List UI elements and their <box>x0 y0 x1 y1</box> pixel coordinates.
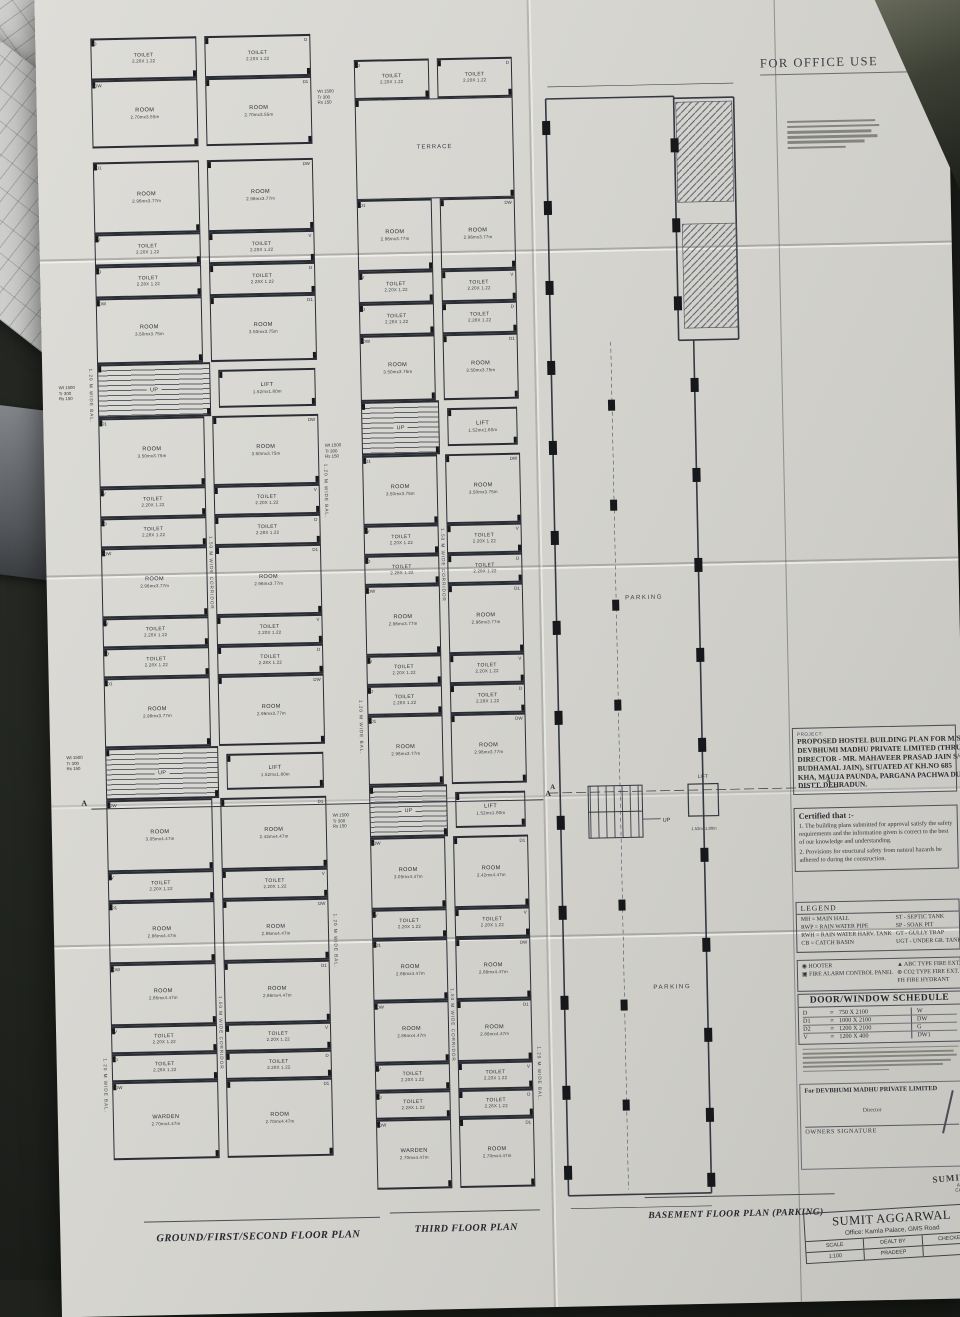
plan-band: DW ROOM 2.70mx3.55m D1 ROOM 2.70mx3.55m <box>82 76 321 149</box>
basement-stair: UP <box>588 785 671 839</box>
legend-left-items: MH = MAIN HALLRWP = RAIN WATER PIPERWH =… <box>801 915 892 949</box>
door-tag: D1 <box>519 838 525 843</box>
door-tag: D <box>98 269 101 274</box>
room-cell: DW ROOM 2.86mx4.47m <box>455 937 531 1001</box>
room-dimension: 2.20X 1.22 <box>263 884 286 890</box>
room-cell: UP <box>361 400 441 456</box>
door-tag: D1 <box>523 1002 529 1007</box>
room-dimension: 2.28X 1.22 <box>256 530 279 536</box>
certificate-block: Certified that :- 1. The building plans … <box>794 805 959 872</box>
plan-band: D TOILET 2.28X 1.22 D TOILET 2.28X 1.22 <box>358 682 535 716</box>
room-cell: DW ROOM 3.50mx3.75m <box>212 414 319 486</box>
room-dimension: 2.70mx4.47m <box>266 1118 295 1124</box>
room-dimension: 2.96mx3.77m <box>254 580 283 586</box>
room-cell: D TOILET 2.28X 1.22 <box>214 514 321 546</box>
plan-band: D1 ROOM 3.50mx3.75m DW ROOM 3.50mx3.75m <box>353 452 530 526</box>
room-cell: D TOILET 2.28X 1.22 <box>100 516 207 548</box>
room-cell: D TOILET 2.28X 1.22 <box>226 1050 333 1080</box>
door-tag: D <box>314 517 317 522</box>
certificate-items: 1. The building plans submitted for appr… <box>799 820 954 865</box>
door-tag: D <box>309 265 312 270</box>
room-cell: V TOILET 2.20X 1.22 <box>358 270 434 304</box>
room-cell: D1 ROOM 2.70mx4.47m <box>459 1116 535 1188</box>
door-tag: D <box>106 651 109 656</box>
room-dimension: 2.96mx3.77m <box>140 583 169 589</box>
room-cell: DW ROOM 2.86mx4.47m <box>373 1000 449 1064</box>
room-dimension: 3.50mx3.75m <box>383 369 412 375</box>
room-cell: V TOILET 2.20X 1.22 <box>225 1022 332 1052</box>
parking-label: PARKING <box>625 594 663 602</box>
fire-legend-item: ▣ FIRE ALARM CONTROL PANEL <box>802 970 893 980</box>
equals-sign: = <box>825 1025 839 1032</box>
stair-note: Wt 1500 Tr 300 Rs 150 <box>333 812 350 829</box>
door-tag: D <box>511 304 514 309</box>
door-code: D1 <box>803 1017 825 1024</box>
room-cell: DW ROOM 2.70mx3.55m <box>91 78 198 148</box>
room-dimension: 2.70mx4.47m <box>483 1153 512 1159</box>
room-dimension: 2.28X 1.22 <box>473 568 496 574</box>
door-tag: V <box>524 910 527 915</box>
room-cell: DW WARDEN 2.70mx4.47m <box>376 1118 452 1190</box>
door-tag: D1 <box>525 1120 531 1125</box>
legend-title: LEGEND <box>797 900 959 915</box>
door-tag: DW <box>515 716 522 721</box>
room-dimension: 2.20X 1.22 <box>250 247 273 253</box>
door-tag: D <box>362 307 365 312</box>
plan-band: D1 ROOM 2.86mx4.47m DW ROOM 2.86mx4.47m <box>99 898 338 965</box>
fire-legend-right: ▲ ABC TYPE FIRE EXT.⊛ CO2 TYPE FIRE EXT.… <box>897 961 960 986</box>
door-size: 1200 X 400 <box>839 1032 912 1041</box>
door-tag: D <box>357 63 360 68</box>
room-cell: V TOILET 2.20X 1.22 <box>108 870 215 902</box>
room-cell: UP <box>369 784 449 838</box>
room-cell: UP <box>105 746 219 800</box>
room-cell: D TOILET 2.28X 1.22 <box>450 683 526 715</box>
plan-band: DW ROOM 3.50mx3.75m D1 ROOM 3.50mx3.75m <box>351 332 528 402</box>
room-dimension: 2.20X 1.22 <box>141 502 164 508</box>
room-cell: TERRACE <box>355 97 515 200</box>
room-cell: D TOILET 2.20X 1.22 <box>354 58 430 100</box>
room-cell: LIFT 1.52mx1.80m <box>226 752 324 790</box>
stair-note: Wt 1500 Tr 300 Rs 150 <box>317 88 334 105</box>
room-dimension: 2.96mx3.77m <box>472 619 501 625</box>
room-cell: V TOILET 2.20X 1.22 <box>441 269 517 303</box>
room-label: UP <box>394 425 408 432</box>
door-tag: V <box>518 656 521 661</box>
room-cell: V TOILET 2.20X 1.22 <box>222 868 329 900</box>
room-label: TERRACE <box>417 144 453 152</box>
room-dimension: 2.28X 1.22 <box>142 532 165 538</box>
room-cell: D1 ROOM 2.42mx4.47m <box>220 796 327 870</box>
balcony-label: 1.20 M WIDE BAL. <box>536 1046 542 1101</box>
room-cell: V TOILET 2.20X 1.22 <box>458 1060 534 1090</box>
room-cell: D1 ROOM 2.96mx3.77m <box>367 714 443 786</box>
door-tag: D <box>304 37 307 42</box>
room-cell: D1 ROOM 3.50mx3.75m <box>443 333 519 401</box>
balcony-label: 1.20 M WIDE BAL. <box>333 914 339 969</box>
room-cell: V TOILET 2.20X 1.22 <box>366 654 442 686</box>
door-tag: D <box>103 521 106 526</box>
room-dimension: 2.96mx3.77m <box>143 713 172 719</box>
room-dimension: 3.50mx3.75m <box>249 328 278 334</box>
room-cell: D1 ROOM 3.50mx3.75m <box>98 416 205 488</box>
room-dimension: 2.20X 1.22 <box>463 78 486 84</box>
door-tag: D <box>516 556 519 561</box>
door-tag: DW <box>373 841 380 846</box>
legend-item: CB = CATCH BASIN <box>801 939 892 949</box>
room-dimension: 2.28X 1.22 <box>259 660 282 666</box>
room-dimension: 2.86mx4.47m <box>396 970 425 976</box>
plan-title-third: THIRD FLOOR PLAN <box>376 1221 556 1236</box>
room-cell: D1 ROOM 2.96mx3.77m <box>104 676 211 748</box>
room-cell: DW ROOM 3.05mx4.47m <box>106 798 213 872</box>
fine-print-lines <box>803 1043 960 1075</box>
room-dimension: 2.20X 1.22 <box>255 500 278 506</box>
room-dimension: 2.96mx3.77m <box>391 750 420 756</box>
door-tag: V <box>105 621 108 626</box>
plan-band: D TOILET 2.28X 1.22 D TOILET 2.28X 1.22 <box>86 262 325 299</box>
room-cell: DW ROOM 3.50mx3.75m <box>360 334 436 402</box>
room-dimension: 2.20X 1.22 <box>467 286 490 292</box>
certificate-title: Certified that :- <box>799 809 953 821</box>
door-tag: DW <box>504 200 511 205</box>
signature-block: For DEVBHUMI MADHU PRIVATE LIMITED Direc… <box>799 1080 960 1169</box>
room-dimension: 2.28X 1.22 <box>145 662 168 668</box>
door-tag: DW <box>510 456 517 461</box>
room-dimension: 2.20X 1.22 <box>390 540 413 546</box>
window-code: DW <box>912 1015 957 1023</box>
door-window-schedule: DOOR/WINDOW SCHEDULE D = 750 X 2100 W D1… <box>797 990 960 1044</box>
room-dimension: 2.70mx4.47m <box>400 1154 429 1160</box>
room-dimension: 2.86mx4.47m <box>262 930 291 936</box>
floor-plan-third: D TOILET 2.20X 1.22 D TOILET 2.20X 1.22 … <box>345 57 545 1190</box>
office-note-lines <box>787 116 884 152</box>
room-dimension: 2.28X 1.22 <box>267 1065 290 1071</box>
room-label: UP <box>147 387 161 394</box>
equals-sign: = <box>825 1033 839 1040</box>
room-dimension: 2.20X 1.22 <box>144 632 167 638</box>
room-dimension: 2.20X 1.22 <box>475 668 498 674</box>
plan-band: D1 ROOM 2.96mx3.77m DW ROOM 2.96mx3.77m <box>95 674 334 749</box>
floor-plan-ground: D TOILET 2.20X 1.22 D TOILET 2.20X 1.22 … <box>81 34 342 1161</box>
room-cell: V TOILET 2.20X 1.22 <box>111 1024 218 1054</box>
dealt-by-value: PRADEEP <box>865 1246 924 1259</box>
room-dimension: 3.50mx3.75m <box>138 453 167 459</box>
room-dimension: 2.70mx3.55m <box>244 111 273 117</box>
room-dimension: 2.28X 1.22 <box>468 318 491 324</box>
door-tag: DW <box>303 161 310 166</box>
title-column: FOR OFFICE USE PROJECT: PROPOSED HOSTEL … <box>776 0 960 1302</box>
room-dimension: 2.28X 1.22 <box>476 698 499 704</box>
room-cell: D TOILET 2.28X 1.22 <box>458 1088 534 1118</box>
door-tag: D1 <box>101 421 107 426</box>
room-dimension: 2.20X 1.22 <box>246 56 269 62</box>
up-label: UP <box>663 818 671 824</box>
room-dimension: 3.50mx3.75m <box>252 450 281 456</box>
project-lines: PROPOSED HOSTEL BUILDING PLAN FOR M/SDEV… <box>797 735 952 792</box>
room-dimension: 2.28X 1.22 <box>137 281 160 287</box>
certificate-item: 2. Provisions for structural safety from… <box>799 846 953 865</box>
door-tag: V <box>378 1067 381 1072</box>
door-tag: V <box>316 617 319 622</box>
plan-title-ground: GROUND/FIRST/SECOND FLOOR PLAN <box>118 1228 398 1245</box>
lift-dimension: 1.52mx1.80m <box>691 826 717 832</box>
room-dimension: 1.52mx1.80m <box>261 771 290 777</box>
room-cell: D TOILET 2.28X 1.22 <box>447 553 523 585</box>
room-dimension: 2.28X 1.22 <box>390 570 413 576</box>
room-dimension: 2.70mx3.55m <box>130 114 159 120</box>
door-tag: D1 <box>375 943 381 948</box>
room-cell: D TOILET 2.28X 1.22 <box>103 646 210 678</box>
architect-title-block: SUMIT AGGARWAL Office: Kamla Palace, GMS… <box>803 1203 960 1264</box>
door-tag: DW <box>318 901 325 906</box>
door-tag: D1 <box>107 681 113 686</box>
stair-note: Wt 1500 Tr 300 Rs 150 <box>66 755 83 772</box>
door-tag: DW <box>313 677 320 682</box>
door-tag: D1 <box>365 459 371 464</box>
room-cell: D1 ROOM 2.70mx3.55m <box>205 76 312 146</box>
plan-band: DW ROOM 3.50mx3.75m D1 ROOM 3.50mx3.75m <box>87 294 326 365</box>
room-cell: LIFT 1.52mx1.80m <box>456 791 526 828</box>
door-tag: DW <box>520 940 527 945</box>
room-cell: V TOILET 2.20X 1.22 <box>449 653 525 685</box>
room-dimension: 2.96mx3.77m <box>132 198 161 204</box>
room-cell: D1 ROOM 2.86mx4.47m <box>224 960 331 1024</box>
project-block: PROJECT: PROPOSED HOSTEL BUILDING PLAN F… <box>792 725 957 796</box>
door-tag: D <box>367 559 370 564</box>
col-checked: CHECKED <box>922 1232 960 1245</box>
fire-legend-block: ◉ HOOTER▣ FIRE ALARM CONTROL PANEL ▲ ABC… <box>797 957 960 992</box>
room-cell: V TOILET 2.20X 1.22 <box>216 614 323 646</box>
plan-band: V TOILET 2.20X 1.22 V TOILET 2.20X 1.22 <box>357 652 534 686</box>
room-dimension: 2.20X 1.22 <box>484 1075 507 1081</box>
room-dimension: 2.20X 1.22 <box>398 924 421 930</box>
room-dimension: 2.42mx4.47m <box>477 872 506 878</box>
room-dimension: 1.52mx1.80m <box>476 810 505 816</box>
plan-bands: D TOILET 2.20X 1.22 D TOILET 2.20X 1.22 … <box>345 57 545 1190</box>
door-tag: D <box>93 41 96 46</box>
door-tag: DW <box>377 1005 384 1010</box>
room-cell: D TOILET 2.28X 1.22 <box>442 301 518 335</box>
room-dimension: 2.20X 1.22 <box>267 1037 290 1043</box>
room-cell: D TOILET 2.20X 1.22 <box>90 36 197 80</box>
scale-value: 1:100 <box>806 1250 865 1263</box>
room-dimension: 2.20X 1.22 <box>132 59 155 65</box>
room-dimension: 2.28X 1.22 <box>153 1067 176 1073</box>
door-tag: D1 <box>111 905 117 910</box>
door-code: V <box>803 1033 825 1040</box>
dimension-line <box>390 1209 540 1213</box>
room-cell: D TOILET 2.28X 1.22 <box>367 684 443 716</box>
blueprint-sheet: D TOILET 2.20X 1.22 D TOILET 2.20X 1.22 … <box>34 0 960 1317</box>
door-tag: DW <box>99 301 106 306</box>
room-cell: D TOILET 2.28X 1.22 <box>217 644 324 676</box>
room-dimension: 3.50mx3.75m <box>469 489 498 495</box>
room-cell: D1 ROOM 2.96mx3.77m <box>215 544 322 616</box>
door-tag: D <box>317 647 320 652</box>
room-cell: DW ROOM 2.96mx3.77m <box>218 674 325 746</box>
stair-note: Wt 1500 Tr 300 Rs 150 <box>59 385 76 402</box>
door-tag: D1 <box>307 297 313 302</box>
door-tag: D1 <box>514 586 520 591</box>
room-cell: V TOILET 2.20X 1.22 <box>100 486 207 518</box>
room-cell: D TOILET 2.28X 1.22 <box>112 1052 219 1082</box>
plan-band: D1 ROOM 2.96mx3.77m DW ROOM 2.96mx3.77m <box>348 196 525 272</box>
window-code: W <box>912 1007 957 1015</box>
plan-band: TERRACE <box>346 97 524 201</box>
schedule-rows: D = 750 X 2100 W D1 = 1000 X 2100 DW D2 <box>803 1007 958 1041</box>
room-dimension: 2.96mx3.77m <box>381 236 410 242</box>
room-cell: D1 ROOM 2.86mx4.47m <box>456 999 532 1063</box>
door-tag: V <box>97 237 100 242</box>
room-cell: V TOILET 2.20X 1.22 <box>208 230 315 264</box>
room-cell: V TOILET 2.20X 1.22 <box>214 484 321 516</box>
plan-band: D1 ROOM 3.50mx3.75m DW ROOM 3.50mx3.75m <box>89 414 328 489</box>
room-dimension: 2.86mx4.47m <box>397 1032 426 1038</box>
plan-band: UP LIFT 1.52mx1.80m <box>96 744 335 801</box>
plan-band: UP LIFT 1.52mx1.80m <box>360 782 537 838</box>
room-dimension: 3.05mx4.47m <box>146 836 175 842</box>
lift-label: LIFT <box>698 774 708 780</box>
room-cell: V TOILET 2.20X 1.22 <box>375 1062 451 1092</box>
room-cell: DW ROOM 2.96mx3.77m <box>440 197 516 271</box>
door-tag: D <box>325 1053 328 1058</box>
room-cell: D TOILET 2.28X 1.22 <box>95 264 202 298</box>
room-dimension: 2.20X 1.22 <box>380 79 403 85</box>
door-tag: D <box>370 689 373 694</box>
room-dimension: 2.70mx4.47m <box>152 1121 181 1127</box>
dimension-line <box>144 1217 380 1223</box>
fire-legend-left: ◉ HOOTER▣ FIRE ALARM CONTROL PANEL <box>802 962 894 988</box>
room-cell: D1 ROOM 2.70mx4.47m <box>226 1078 334 1158</box>
plan-band: D1 ROOM 2.96mx3.77m DW ROOM 2.96mx3.77m <box>84 158 323 235</box>
room-cell: D TOILET 2.28X 1.22 <box>209 262 316 296</box>
certificate-item: 1. The building plans submitted for appr… <box>799 820 953 846</box>
door-tag: V <box>375 913 378 918</box>
plan-band: D TOILET 2.20X 1.22 D TOILET 2.20X 1.22 <box>81 34 320 81</box>
plan-band: D TOILET 2.20X 1.22 D TOILET 2.20X 1.22 <box>345 57 522 101</box>
signature-company: For DEVBHUMI MADHU PRIVATE LIMITED <box>804 1085 958 1095</box>
room-cell: DW ROOM 3.50mx3.75m <box>96 296 203 364</box>
door-tag: D <box>527 1092 530 1097</box>
room-cell: D TOILET 2.20X 1.22 <box>437 57 513 99</box>
room-dimension: 2.28X 1.22 <box>485 1103 508 1109</box>
room-dimension: 2.20X 1.22 <box>149 886 172 892</box>
room-cell: DW WARDEN 2.70mx4.47m <box>112 1080 220 1160</box>
signature-role: Director <box>863 1106 959 1114</box>
door-tag: V <box>103 491 106 496</box>
door-tag: V <box>516 526 519 531</box>
door-tag: V <box>114 1029 117 1034</box>
room-dimension: 2.20X 1.22 <box>481 922 504 928</box>
room-dimension: 2.28X 1.22 <box>385 319 408 325</box>
schedule-title: DOOR/WINDOW SCHEDULE <box>798 992 960 1008</box>
door-tag: D1 <box>96 165 102 170</box>
room-label: UP <box>402 808 416 815</box>
room-cell: V TOILET 2.20X 1.22 <box>364 524 440 556</box>
door-tag: V <box>527 1064 530 1069</box>
room-cell: UP <box>97 362 211 418</box>
door-tag: DW <box>94 83 101 88</box>
room-dimension: 2.86mx4.47m <box>479 969 508 975</box>
door-tag: V <box>361 275 364 280</box>
room-cell: V TOILET 2.20X 1.22 <box>102 616 209 648</box>
room-cell: D1 ROOM 2.96mx3.77m <box>93 160 200 234</box>
room-dimension: 2.42mx4.47m <box>260 833 289 839</box>
plan-band: V TOILET 2.20X 1.22 V TOILET 2.20X 1.22 <box>363 906 540 940</box>
fire-legend-item: FH FIRE HYDRANT <box>897 976 960 985</box>
room-dimension: 2.28X 1.22 <box>402 1105 425 1111</box>
door-tag: D1 <box>371 719 377 724</box>
door-tag: DW <box>115 1085 122 1090</box>
room-dimension: 2.96mx3.77m <box>257 710 286 716</box>
room-cell: D TOILET 2.28X 1.22 <box>359 302 435 336</box>
equals-sign: = <box>825 1009 839 1016</box>
door-tag: D <box>378 1095 381 1100</box>
room-cell: DW ROOM 2.86mx4.47m <box>110 962 217 1026</box>
plan-band: V TOILET 2.20X 1.22 V TOILET 2.20X 1.22 <box>93 614 332 649</box>
room-cell: DW ROOM 2.96mx3.77m <box>365 584 441 656</box>
door-tag: V <box>314 487 317 492</box>
room-dimension: 2.96mx3.77m <box>474 749 503 755</box>
room-cell: V TOILET 2.20X 1.22 <box>455 907 531 939</box>
room-dimension: 2.20X 1.22 <box>153 1039 176 1045</box>
room-dimension: 2.86mx4.47m <box>148 933 177 939</box>
project-line: DISTT. DEHRADUN. <box>798 779 952 791</box>
door-tag: V <box>325 1025 328 1030</box>
section-marker: A <box>81 799 87 808</box>
equals-sign: = <box>825 1017 839 1024</box>
room-cell: LIFT 1.52mx1.80m <box>218 368 316 408</box>
architect-stamp: SUMIT Arch. CADA <box>887 1172 960 1199</box>
door-tag: DW <box>379 1123 386 1128</box>
door-tag: V <box>308 233 311 238</box>
room-dimension: 3.50mx3.75m <box>135 331 164 337</box>
legend-right-items: ST - SEPTIC TANKSP - SOAK PITGT - GULLY … <box>896 913 960 946</box>
door-tag: DW <box>113 967 120 972</box>
door-tag: V <box>510 272 513 277</box>
door-tag: D1 <box>312 547 318 552</box>
basement-ramp-hatch <box>676 101 739 328</box>
door-code: D2 <box>803 1025 825 1032</box>
room-cell: D1 ROOM 2.96mx3.77m <box>448 583 524 655</box>
room-cell: V TOILET 2.20X 1.22 <box>446 523 522 555</box>
plan-band: UP LIFT 1.52mx1.80m <box>352 398 529 456</box>
room-cell: D1 ROOM 2.42mx4.47m <box>453 835 529 909</box>
door-tag: D1 <box>303 79 309 84</box>
room-cell: V TOILET 2.20X 1.22 <box>94 232 201 266</box>
door-tag: D <box>519 686 522 691</box>
room-dimension: 2.20X 1.22 <box>473 539 496 545</box>
door-tag: V <box>322 871 325 876</box>
room-dimension: 2.96mx3.77m <box>246 195 275 201</box>
room-dimension: 2.20X 1.22 <box>258 630 281 636</box>
room-cell: DW ROOM 3.50mx3.75m <box>445 453 521 525</box>
legend-block: LEGEND MH = MAIN HALLRWP = RAIN WATER PI… <box>795 899 960 953</box>
room-dimension: 2.20X 1.22 <box>392 670 415 676</box>
room-cell: D TOILET 2.28X 1.22 <box>375 1090 451 1120</box>
door-tag: D <box>506 60 509 65</box>
door-tag: D1 <box>324 1081 330 1086</box>
plan-band: D1 ROOM 2.96mx3.77m DW ROOM 2.96mx3.77m <box>358 712 535 786</box>
room-cell: DW ROOM 3.05mx4.47m <box>370 836 446 910</box>
room-dimension: 2.20X 1.22 <box>384 287 407 293</box>
door-tag: V <box>111 875 114 880</box>
room-dimension: 2.96mx3.77m <box>389 621 418 627</box>
door-tag: DW <box>104 551 111 556</box>
room-dimension: 2.20X 1.22 <box>401 1077 424 1083</box>
section-marker: A <box>550 783 555 791</box>
